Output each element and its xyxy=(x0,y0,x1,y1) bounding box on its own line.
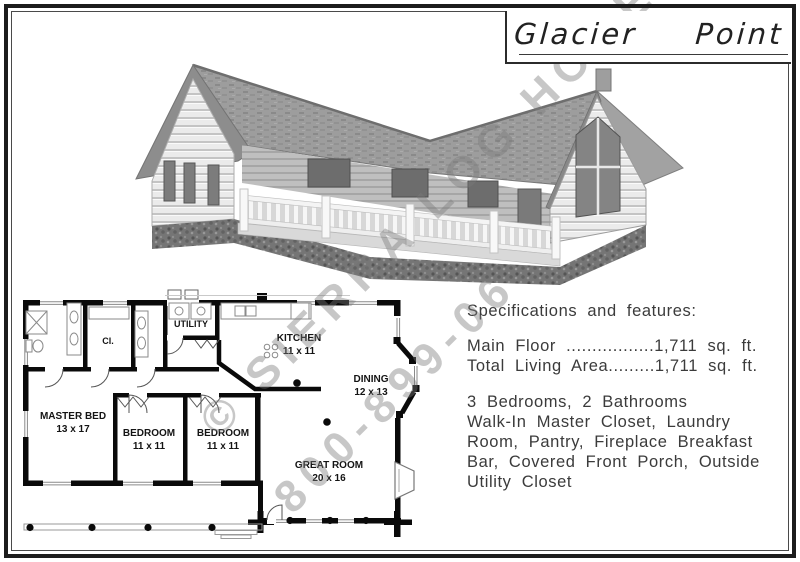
porch-steps xyxy=(221,535,251,539)
specs-total-living: Total Living Area.........1,711 sq. ft. xyxy=(467,356,789,376)
chimney xyxy=(596,69,611,91)
room-label-dining: DINING xyxy=(354,374,389,385)
fireplace xyxy=(395,462,414,499)
utility-exterior-doors xyxy=(168,290,198,299)
plan-sheet-page: © SIERRA LOG HOMES 800-899-06 Glacier Po… xyxy=(0,0,800,562)
plan-title: Glacier Point xyxy=(513,17,785,57)
house-rendering-svg xyxy=(130,55,690,287)
porch-columns xyxy=(26,379,369,531)
room-label-great-room: GREAT ROOM xyxy=(295,460,363,471)
room-label-utility: UTILITY xyxy=(174,319,208,329)
specs-feature-line: Walk-In Master Closet, Laundry xyxy=(467,412,789,432)
left-gable-window xyxy=(208,165,219,205)
room-dims-kitchen: 11 x 11 xyxy=(283,346,316,357)
porch-post xyxy=(552,217,560,259)
floor-plan: MASTER BED 13 x 17 BEDROOM 11 x 11 BEDRO… xyxy=(15,283,455,551)
room-dims-bedroom-2: 11 x 11 xyxy=(207,441,240,452)
specs-heading: Specifications and features: xyxy=(467,301,789,321)
title-underline xyxy=(519,54,788,55)
porch-steps xyxy=(215,531,257,535)
porch-post xyxy=(240,189,248,231)
plan-fixtures xyxy=(26,303,311,358)
prow-diagonal-walls xyxy=(398,343,414,413)
porch-post xyxy=(406,204,414,246)
left-gable-window xyxy=(184,163,195,203)
room-label-master-bed: MASTER BED xyxy=(40,411,106,422)
room-dims-bedroom-1: 11 x 11 xyxy=(133,441,166,452)
porch-post xyxy=(322,196,330,238)
specs-feature-line: Bar, Covered Front Porch, Outside xyxy=(467,452,789,472)
porch-post xyxy=(490,211,498,253)
room-label-bedroom-2: BEDROOM xyxy=(197,428,249,439)
front-window xyxy=(468,181,498,207)
plan-title-box: Glacier Point xyxy=(505,11,791,64)
room-dims-great-room: 20 x 16 xyxy=(312,473,346,484)
specs-feature-line: Utility Closet xyxy=(467,472,789,492)
floor-plan-svg: MASTER BED 13 x 17 BEDROOM 11 x 11 BEDRO… xyxy=(15,283,455,551)
front-door xyxy=(518,189,541,227)
specs-main-floor: Main Floor .................1,711 sq. ft… xyxy=(467,336,789,356)
specs-feature-line: Room, Pantry, Fireplace Breakfast xyxy=(467,432,789,452)
room-label-closet: Cl. xyxy=(102,336,114,346)
room-dims-master-bed: 13 x 17 xyxy=(56,424,90,435)
room-dims-dining: 12 x 13 xyxy=(354,387,388,398)
house-rendering xyxy=(130,55,690,287)
porch-outline xyxy=(24,524,262,530)
specifications-panel: Specifications and features: Main Floor … xyxy=(467,301,789,492)
specs-features-list: 3 Bedrooms, 2 Bathrooms Walk-In Master C… xyxy=(467,392,789,492)
left-gable-window xyxy=(164,161,175,201)
specs-feature-line: 3 Bedrooms, 2 Bathrooms xyxy=(467,392,789,412)
room-label-kitchen: KITCHEN xyxy=(277,333,321,344)
room-label-bedroom-1: BEDROOM xyxy=(123,428,175,439)
front-window xyxy=(308,159,350,187)
front-window xyxy=(392,169,428,197)
